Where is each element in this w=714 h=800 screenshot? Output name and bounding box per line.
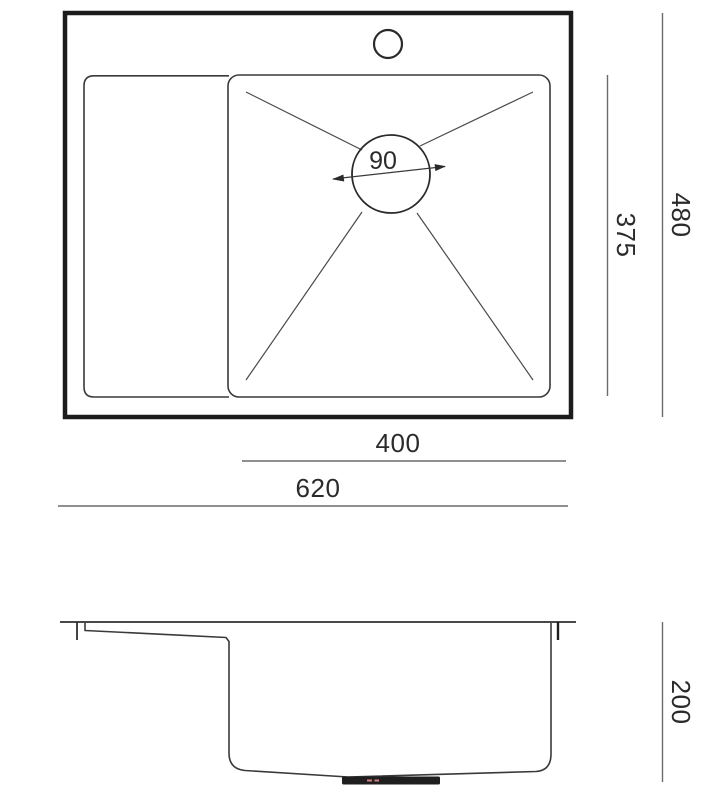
top-view: 90 [65,13,571,417]
dim-label-375: 375 [611,213,641,258]
sink-dimension-diagram: 90 375 480 400 620 [0,0,714,800]
crease-line-bottom-left [246,212,362,380]
drain-diameter-label: 90 [369,147,397,175]
sink-outer-rim [65,13,571,417]
crease-line-top-left [246,92,362,150]
faucet-hole [374,30,402,58]
dim-label-620: 620 [296,473,341,503]
dim-label-400: 400 [376,428,421,458]
dim-label-480: 480 [666,193,696,238]
top-view-dimensions: 375 480 400 620 [58,13,696,506]
dim-label-200: 200 [666,680,696,725]
arrowhead-left [332,175,344,182]
drain-fitting [342,777,440,785]
basin-outline [228,75,550,397]
arrowhead-right [435,164,446,171]
crease-line-bottom-right [417,213,533,380]
section-view: 200 [60,622,696,785]
bowl-profile [85,623,551,777]
technical-drawing-page: 90 375 480 400 620 [0,0,714,800]
drainboard-panel [84,76,229,397]
crease-line-top-right [420,92,533,146]
